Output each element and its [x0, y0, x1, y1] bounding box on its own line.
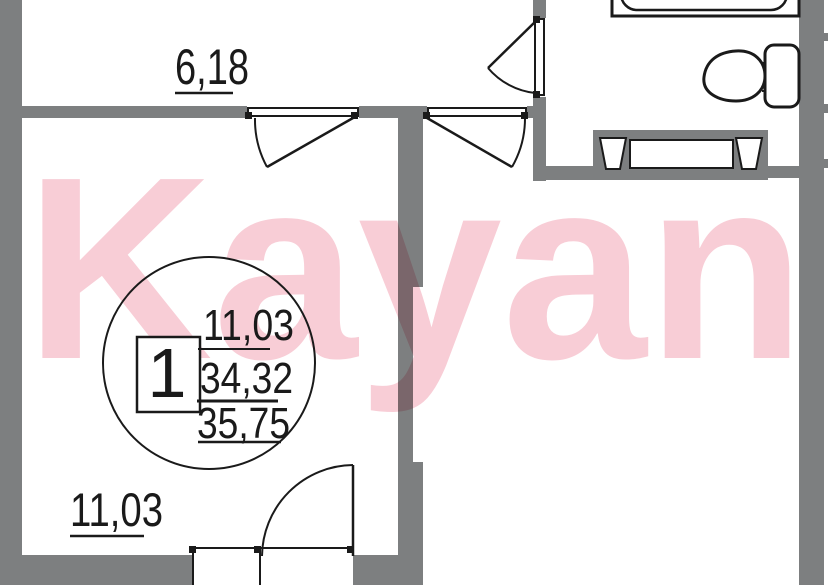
door-jamb-left	[245, 112, 252, 119]
apartment-number: 1	[148, 334, 187, 412]
living-room-area-label: 11,03	[70, 483, 163, 536]
wall-tick-bottom	[824, 159, 828, 168]
wall-exterior-left	[0, 0, 22, 585]
floor-plan: Kayan	[0, 0, 828, 585]
wall-hall-top-left-segment	[22, 106, 247, 118]
bathtub-inner	[621, 0, 787, 10]
door-jamb-right	[521, 112, 528, 119]
total-area-value: 35,75	[197, 399, 290, 448]
door-frame	[535, 19, 544, 95]
apartment-area-value: 34,32	[200, 354, 293, 403]
vent-center-rect	[630, 140, 733, 168]
door-frame	[248, 108, 358, 116]
wall-exterior-bottom-right	[353, 555, 398, 585]
living-area-value: 11,03	[203, 301, 294, 350]
floor-plan-canvas: Kayan	[0, 0, 828, 585]
wall-exterior-bottom-left	[22, 555, 192, 585]
balcony-jamb-left	[189, 546, 196, 553]
door-frame	[428, 108, 526, 116]
wall-bathroom-left-upper	[533, 0, 546, 18]
wall-tick-middle	[824, 104, 828, 113]
wall-tick-top	[824, 33, 828, 41]
balcony-jamb-middle	[254, 546, 261, 553]
toilet-tank	[765, 45, 799, 107]
hallway-area-label: 6,18	[175, 39, 249, 95]
toilet-bowl	[704, 51, 765, 101]
wall-room-divider-lower	[398, 462, 423, 585]
